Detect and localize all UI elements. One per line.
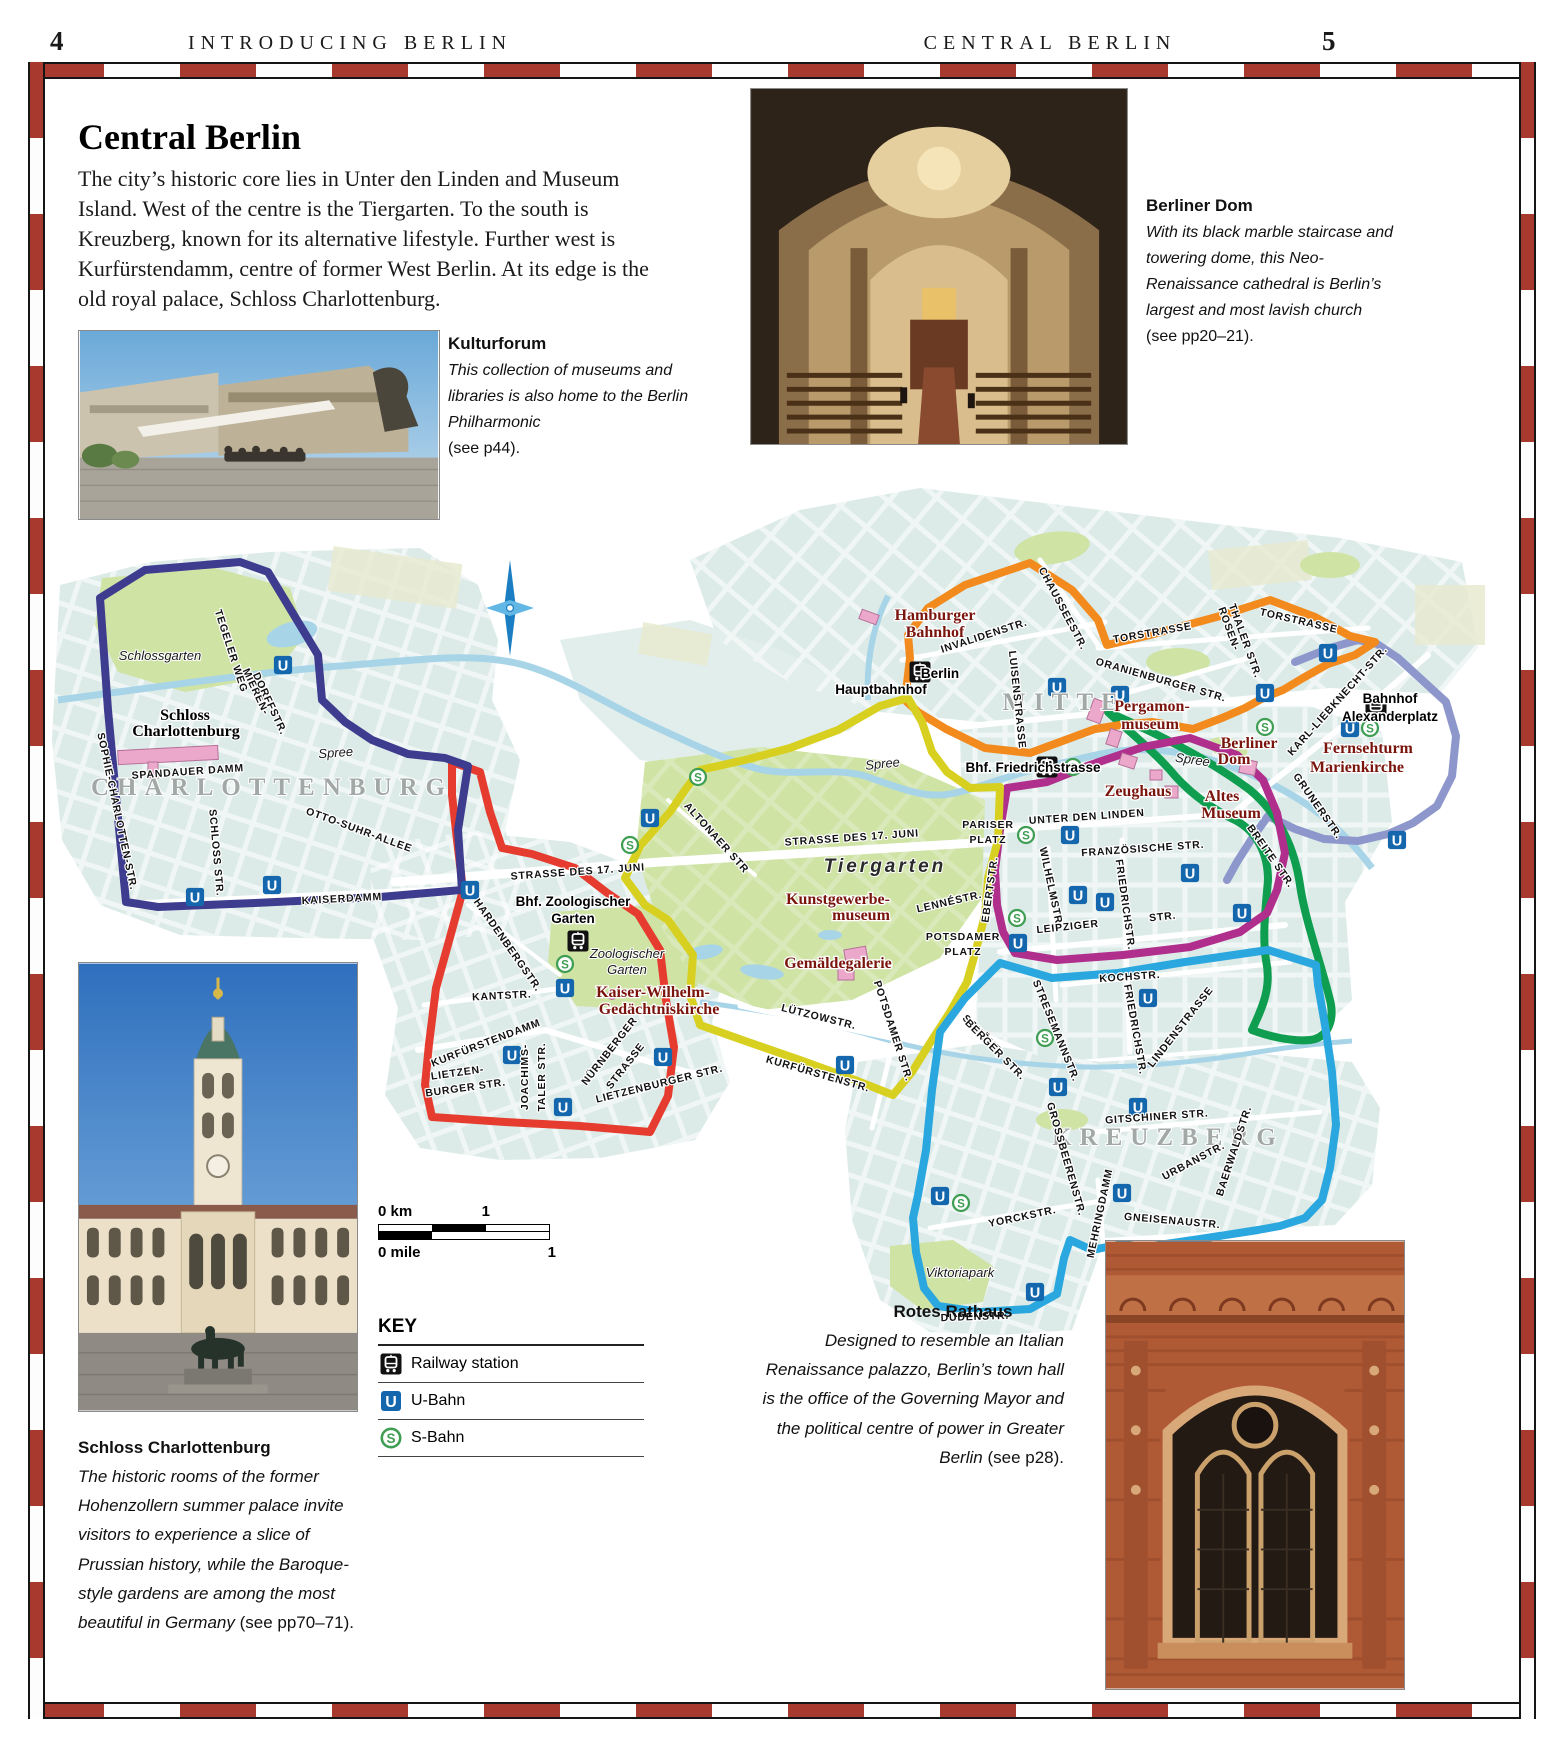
map-label: Garten <box>607 962 647 977</box>
page: 4 INTRODUCING BERLIN CENTRAL BERLIN 5 Ce… <box>0 0 1560 1749</box>
s-bahn-badge <box>557 956 573 972</box>
map-label: Dom <box>1218 751 1252 768</box>
u-bahn-badge <box>641 809 659 828</box>
u-bahn-badge <box>1181 864 1199 883</box>
map-label: Tiergarten <box>824 856 947 877</box>
key-item-label: U-Bahn <box>411 1392 465 1410</box>
s-bahn-badge <box>1009 910 1025 926</box>
u-bahn-badge <box>1319 644 1337 663</box>
u-bahn-badge <box>1026 1283 1044 1302</box>
map-label: museum <box>1121 716 1179 733</box>
map-label: Museum <box>1201 805 1261 822</box>
u-bahn-badge <box>1061 826 1079 845</box>
caption-ref: (see p44). <box>448 440 520 457</box>
map-label: Kaiser-Wilhelm- <box>596 984 710 1001</box>
caption-title: Schloss Charlottenburg <box>78 1438 374 1458</box>
map-label: Fernsehturm <box>1323 740 1413 757</box>
u-bahn-badge <box>1009 934 1027 953</box>
u-bahn-badge <box>554 1098 572 1117</box>
u-bahn-badge <box>1388 831 1406 850</box>
key-item: S-Bahn <box>378 1420 644 1457</box>
s-bahn-icon <box>380 1427 402 1449</box>
scale-mile-one: 1 <box>548 1244 556 1261</box>
u-bahn-badge <box>654 1048 672 1067</box>
scale-mile-zero: 0 mile <box>378 1244 421 1261</box>
map-label: Bahnhof <box>1363 691 1418 706</box>
rotes-rathaus-caption: Rotes Rathaus Designed to resemble an It… <box>752 1302 1064 1472</box>
u-bahn-badge <box>1233 904 1251 923</box>
caption-body: Designed to resemble an Italian Renaissa… <box>763 1331 1064 1467</box>
scale-km-one: 1 <box>482 1203 490 1220</box>
map-label: Charlottenburg <box>132 723 240 740</box>
map-label: PARISER <box>962 819 1014 831</box>
map-label: Kunstgewerbe- <box>786 891 890 908</box>
u-bahn-badge <box>461 881 479 900</box>
map-label: Garten <box>551 911 595 926</box>
map-label: JOACHIMS- <box>519 1044 531 1110</box>
berliner-dom-caption: Berliner Dom With its black marble stair… <box>1146 196 1400 350</box>
s-bahn-badge <box>1257 719 1273 735</box>
checkered-border-right <box>1519 62 1536 1719</box>
intro-paragraph: The city’s historic core lies in Unter d… <box>78 164 674 314</box>
key-items: Railway stationU-BahnS-Bahn <box>378 1346 644 1457</box>
caption-ref: (see p28). <box>987 1448 1064 1467</box>
map-label: TALER STR. <box>536 1042 548 1111</box>
u-bahn-badge <box>931 1187 949 1206</box>
key-title: KEY <box>378 1316 644 1338</box>
map-label: Gemäldegalerie <box>784 955 892 972</box>
checkered-border-left <box>28 62 45 1719</box>
u-bahn-badge <box>274 656 292 675</box>
map-label: Schlossgarten <box>119 648 201 663</box>
map-label: Hamburger <box>895 607 976 624</box>
u-bahn-badge <box>1139 989 1157 1008</box>
kulturforum-caption: Kulturforum This collection of museums a… <box>448 334 694 462</box>
map-label: Zeughaus <box>1105 783 1172 800</box>
u-bahn-badge <box>836 1056 854 1075</box>
map-label: Zoologischer <box>589 946 665 961</box>
checkered-border-top <box>28 62 1532 79</box>
page-title: Central Berlin <box>78 116 301 158</box>
schloss-charlottenburg-photo <box>78 962 358 1412</box>
u-bahn-badge <box>1113 1184 1131 1203</box>
map-label: PLATZ <box>969 834 1006 846</box>
scale-km-zero: 0 km <box>378 1203 412 1220</box>
u-bahn-badge <box>1069 886 1087 905</box>
map-label: PLATZ <box>944 946 981 958</box>
map-label: Altes <box>1205 788 1240 805</box>
caption-title: Berliner Dom <box>1146 196 1400 216</box>
s-bahn-badge <box>953 1195 969 1211</box>
caption-body: With its black marble staircase and towe… <box>1146 224 1393 319</box>
caption-body: This collection of museums and libraries… <box>448 362 688 431</box>
map-key: KEY Railway stationU-BahnS-Bahn <box>378 1316 644 1457</box>
map-label: KREUZBERG <box>1052 1124 1284 1151</box>
caption-ref: (see pp20–21). <box>1146 328 1254 345</box>
map-label: KURFÜRSTENSTR. <box>765 1053 872 1095</box>
caption-title: Rotes Rathaus <box>752 1302 1064 1322</box>
map-label: Gedächtniskirche <box>599 1001 720 1018</box>
key-item: U-Bahn <box>378 1383 644 1420</box>
map-label: Bhf. Zoologischer <box>516 894 631 909</box>
map-label: Pergamon- <box>1114 698 1190 715</box>
u-bahn-badge <box>1256 684 1274 703</box>
s-bahn-badge <box>690 769 706 785</box>
key-item-label: Railway station <box>411 1355 519 1373</box>
u-bahn-badge <box>556 979 574 998</box>
berliner-dom-photo <box>750 88 1128 445</box>
u-bahn-badge <box>263 876 281 895</box>
map-label: museum <box>832 907 890 924</box>
rotes-rathaus-photo <box>1105 1240 1405 1690</box>
map-label: Bhf. Friedrichstrasse <box>965 760 1101 775</box>
s-bahn-badge <box>622 837 638 853</box>
map-label: Marienkirche <box>1310 759 1404 776</box>
u-bahn-badge <box>1096 893 1114 912</box>
map-label: Alexanderplatz <box>1342 709 1438 724</box>
railway-station-badge <box>568 931 589 952</box>
map-label: Spree <box>318 744 354 761</box>
caption-ref: (see pp70–71). <box>240 1613 354 1632</box>
map-label: Hauptbahnhof <box>835 682 927 697</box>
caption-body: The historic rooms of the former Hohenzo… <box>78 1467 349 1632</box>
schloss-charlottenburg-caption: Schloss Charlottenburg The historic room… <box>78 1438 374 1637</box>
u-bahn-icon <box>380 1390 402 1412</box>
u-bahn-badge <box>186 888 204 907</box>
map-label: Berlin <box>921 666 959 681</box>
map-label: Berliner <box>1221 735 1278 752</box>
u-bahn-badge <box>1049 1078 1067 1097</box>
key-item: Railway station <box>378 1346 644 1383</box>
caption-title: Kulturforum <box>448 334 694 354</box>
key-item-label: S-Bahn <box>411 1429 464 1447</box>
scale-bar-graphic <box>378 1224 550 1240</box>
kulturforum-photo <box>78 330 440 520</box>
map-label: Schloss <box>160 707 210 724</box>
map-label: POTSDAMER <box>926 931 1000 943</box>
map-scale-bar: 0 km 1 0 mile 1 <box>378 1203 560 1261</box>
checkered-border-bottom <box>28 1702 1532 1719</box>
map-label: Viktoriapark <box>926 1265 996 1280</box>
s-bahn-badge <box>1018 827 1034 843</box>
railway-station-icon <box>380 1353 402 1375</box>
